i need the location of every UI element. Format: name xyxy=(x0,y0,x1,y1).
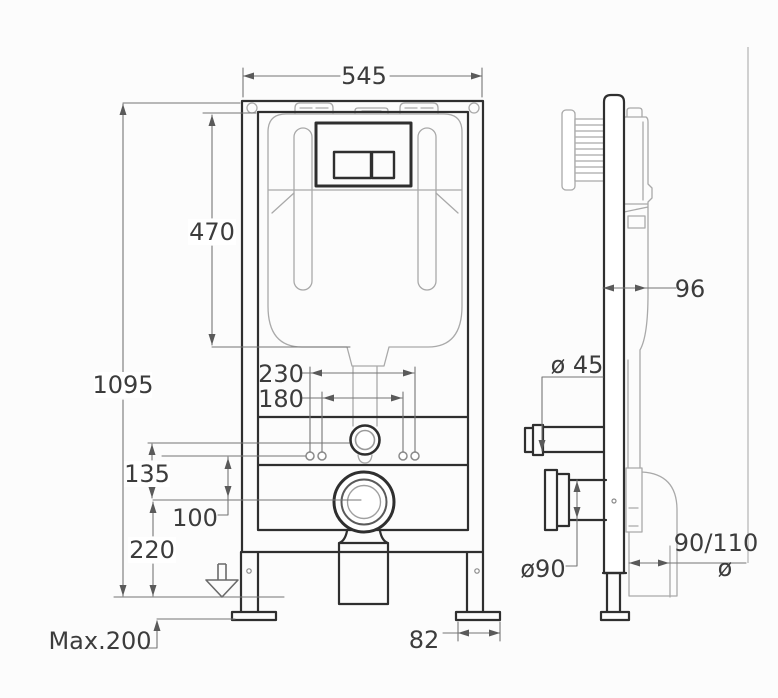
arrowhead xyxy=(489,630,500,637)
arrowhead xyxy=(149,444,156,455)
arrowhead xyxy=(323,395,334,402)
arrowhead xyxy=(150,585,157,596)
arrowhead xyxy=(391,395,402,402)
arrowhead xyxy=(120,585,127,596)
flush-plate xyxy=(316,123,411,186)
cistern-right-slot xyxy=(418,128,436,290)
corner-screw-right-icon xyxy=(469,103,479,113)
dim-outlet-pipe-label: ø90 xyxy=(520,555,565,583)
arrowhead xyxy=(311,370,322,377)
front-view: 545 1095 470 230 180 135 100 220 Max.200… xyxy=(48,62,500,655)
dim-depth-label: 96 xyxy=(675,275,706,303)
fixing-hole xyxy=(411,452,419,460)
arrowhead xyxy=(403,370,414,377)
dim-fixing-inner-label: 180 xyxy=(258,385,304,413)
outlet-elbow-path xyxy=(626,468,677,597)
fixing-hole xyxy=(399,452,407,460)
dim-foot-width-label: 82 xyxy=(409,626,440,654)
arrowhead xyxy=(150,502,157,513)
leg-adjuster-dot xyxy=(475,569,479,573)
actuator-body xyxy=(575,119,604,181)
dim-inlet-offset-label: 135 xyxy=(124,460,170,488)
dim-elbow-diameter-symbol: ø xyxy=(718,554,733,582)
fixing-hole xyxy=(306,452,314,460)
arrowhead xyxy=(658,560,669,567)
flush-plate-buttons xyxy=(334,152,394,178)
dim-foot-adjustment-label: Max.200 xyxy=(48,627,151,655)
arrowhead xyxy=(574,481,581,492)
arrowhead xyxy=(225,458,232,469)
actuator-face-plate xyxy=(562,110,575,190)
arrowhead xyxy=(471,73,482,80)
arrowhead xyxy=(458,630,469,637)
corner-screw-left-icon xyxy=(247,103,257,113)
arrowhead xyxy=(539,440,546,451)
dim-elbow-size-label: 90/110 xyxy=(674,529,758,557)
fixing-hole xyxy=(318,452,326,460)
dim-cistern-height-label: 470 xyxy=(189,218,235,246)
dim-fixing-outer-label: 230 xyxy=(258,360,304,388)
arrowhead xyxy=(574,507,581,518)
arrowhead xyxy=(149,487,156,498)
cistern-frame-drawing: 545 1095 470 230 180 135 100 220 Max.200… xyxy=(0,0,778,698)
dim-overall-height-label: 1095 xyxy=(92,371,153,399)
arrowhead xyxy=(209,334,216,345)
arrowhead xyxy=(154,620,161,631)
leg-adjuster-dot xyxy=(247,569,251,573)
dim-bracket-offset-label: 100 xyxy=(172,504,218,532)
arrowhead xyxy=(209,115,216,126)
technical-drawing-page: 545 1095 470 230 180 135 100 220 Max.200… xyxy=(0,0,778,698)
arrowhead xyxy=(629,560,640,567)
dim-outlet-height-label: 220 xyxy=(129,536,175,564)
leg-adjuster-dot xyxy=(612,499,616,503)
floor-level-icon xyxy=(206,564,238,597)
arrowhead xyxy=(120,104,127,115)
outlet-port-outer xyxy=(334,472,394,532)
arrowhead xyxy=(243,73,254,80)
cistern-left-slot xyxy=(294,128,312,290)
dim-width-label: 545 xyxy=(341,62,387,90)
arrowhead xyxy=(225,486,232,497)
side-view: 96 ø 45 ø90 90/110 ø xyxy=(520,47,758,620)
arrowhead xyxy=(635,285,646,292)
dim-flush-pipe-label: ø 45 xyxy=(551,351,604,379)
